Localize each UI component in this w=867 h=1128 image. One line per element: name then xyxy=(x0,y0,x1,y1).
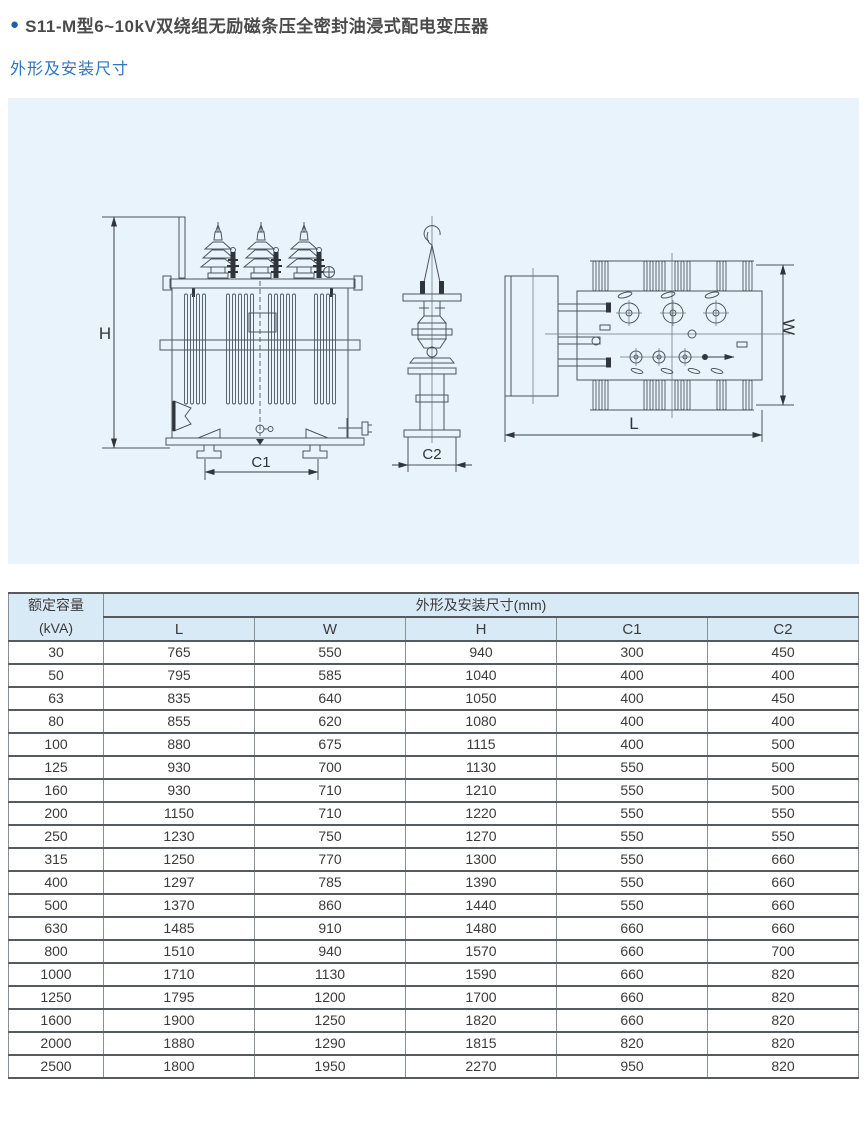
top-view-drawing: W L xyxy=(505,253,798,442)
dimension-cell: 585 xyxy=(255,664,406,687)
dimension-cell: 1130 xyxy=(406,756,557,779)
table-row: 808556201080400400 xyxy=(9,710,859,733)
capacity-cell: 125 xyxy=(9,756,104,779)
dimension-cell: 660 xyxy=(557,940,708,963)
capacity-cell: 250 xyxy=(9,825,104,848)
dimension-cell: 1115 xyxy=(406,733,557,756)
dimension-cell: 660 xyxy=(708,871,859,894)
dimension-cell: 1700 xyxy=(406,986,557,1009)
capacity-cell: 1000 xyxy=(9,963,104,986)
dimension-cell: 1390 xyxy=(406,871,557,894)
dimension-cell: 400 xyxy=(557,687,708,710)
dimension-cell: 1270 xyxy=(406,825,557,848)
capacity-cell: 800 xyxy=(9,940,104,963)
dimension-cell: 640 xyxy=(255,687,406,710)
dimension-cell: 1800 xyxy=(104,1055,255,1078)
capacity-cell: 2500 xyxy=(9,1055,104,1078)
table-row: 2500180019502270950820 xyxy=(9,1055,859,1078)
dimension-cell: 860 xyxy=(255,894,406,917)
dimension-cell: 1040 xyxy=(406,664,557,687)
table-row: 1000171011301590660820 xyxy=(9,963,859,986)
dimension-cell: 880 xyxy=(104,733,255,756)
dimension-cell: 785 xyxy=(255,871,406,894)
dim-label-c2: C2 xyxy=(422,446,441,463)
dimension-cell: 400 xyxy=(708,710,859,733)
bushing-top-icon xyxy=(660,300,686,326)
dimension-cell: 400 xyxy=(708,664,859,687)
col-header-l: L xyxy=(104,617,255,641)
table-subheader-row: L W H C1 C2 xyxy=(9,617,859,641)
dimension-cell: 940 xyxy=(406,641,557,664)
dimension-cell: 930 xyxy=(104,756,255,779)
dimension-cell: 1950 xyxy=(255,1055,406,1078)
col-header-w: W xyxy=(255,617,406,641)
dimension-cell: 820 xyxy=(708,963,859,986)
dimension-cell: 1900 xyxy=(104,1009,255,1032)
table-body: 3076555094030045050795585104040040063835… xyxy=(9,641,859,1078)
dimension-cell: 660 xyxy=(557,986,708,1009)
table-row: 1259307001130550500 xyxy=(9,756,859,779)
capacity-cell: 50 xyxy=(9,664,104,687)
capacity-cell: 200 xyxy=(9,802,104,825)
dimension-cell: 1440 xyxy=(406,894,557,917)
dimension-cell: 1590 xyxy=(406,963,557,986)
table-row: 20011507101220550550 xyxy=(9,802,859,825)
dimension-cell: 550 xyxy=(708,825,859,848)
capacity-cell: 2000 xyxy=(9,1032,104,1055)
dimension-cell: 1370 xyxy=(104,894,255,917)
lv-bushing-icon xyxy=(227,248,239,279)
front-view-drawing: H xyxy=(99,217,372,480)
capacity-cell: 1600 xyxy=(9,1009,104,1032)
page-title: ● S11-M型6~10kV双绕组无励磁条压全密封油浸式配电变压器 xyxy=(10,12,489,37)
table-row: 50013708601440550660 xyxy=(9,894,859,917)
bushing-top-icon xyxy=(703,300,729,326)
dimension-cell: 855 xyxy=(104,710,255,733)
hv-bushing-icon xyxy=(201,222,235,278)
side-valve-icon xyxy=(338,418,372,438)
dimension-cell: 620 xyxy=(255,710,406,733)
lv-bushing-icon xyxy=(270,248,282,279)
dimension-cell: 550 xyxy=(557,871,708,894)
table-row: 1250179512001700660820 xyxy=(9,986,859,1009)
dimension-cell: 550 xyxy=(557,802,708,825)
dimension-cell: 820 xyxy=(708,986,859,1009)
table-row: 1008806751115400500 xyxy=(9,733,859,756)
dimension-cell: 1290 xyxy=(255,1032,406,1055)
dimension-cell: 835 xyxy=(104,687,255,710)
dimension-cell: 660 xyxy=(708,917,859,940)
dimension-cell: 710 xyxy=(255,802,406,825)
dimension-cell: 1710 xyxy=(104,963,255,986)
dimension-cell: 550 xyxy=(255,641,406,664)
dimension-cell: 1570 xyxy=(406,940,557,963)
transformer-outline-drawing: H xyxy=(8,98,859,564)
side-view-drawing: C2 xyxy=(392,216,472,472)
dimension-cell: 910 xyxy=(255,917,406,940)
dimension-cell: 1815 xyxy=(406,1032,557,1055)
capacity-cell: 100 xyxy=(9,733,104,756)
dimension-cell: 1210 xyxy=(406,779,557,802)
dim-label-w: W xyxy=(779,319,798,335)
dimension-cell: 1200 xyxy=(255,986,406,1009)
dimension-cell: 1220 xyxy=(406,802,557,825)
dimension-group-header: 外形及安装尺寸(mm) xyxy=(104,593,859,617)
dimension-cell: 1820 xyxy=(406,1009,557,1032)
capacity-cell: 160 xyxy=(9,779,104,802)
dimension-cell: 400 xyxy=(557,710,708,733)
capacity-cell: 80 xyxy=(9,710,104,733)
dimension-cell: 940 xyxy=(255,940,406,963)
dimension-cell: 500 xyxy=(708,756,859,779)
hv-bushing-icon xyxy=(287,222,321,278)
capacity-cell: 1250 xyxy=(9,986,104,1009)
dimension-cell: 550 xyxy=(557,894,708,917)
table-row: 1609307101210550500 xyxy=(9,779,859,802)
dimension-cell: 1480 xyxy=(406,917,557,940)
dimension-cell: 300 xyxy=(557,641,708,664)
dimension-cell: 1080 xyxy=(406,710,557,733)
section-subtitle: 外形及安装尺寸 xyxy=(10,55,129,79)
dimension-cell: 550 xyxy=(557,825,708,848)
capacity-header-label: 额定容量 xyxy=(9,594,103,617)
dimension-cell: 950 xyxy=(557,1055,708,1078)
dimension-cell: 1150 xyxy=(104,802,255,825)
dim-label-l: L xyxy=(629,414,638,433)
dimension-cell: 795 xyxy=(104,664,255,687)
dimension-cell: 820 xyxy=(708,1032,859,1055)
dimension-cell: 1297 xyxy=(104,871,255,894)
col-header-h: H xyxy=(406,617,557,641)
dimension-cell: 2270 xyxy=(406,1055,557,1078)
dimension-cell: 660 xyxy=(557,1009,708,1032)
dimension-cell: 820 xyxy=(708,1055,859,1078)
table-row: 25012307501270550550 xyxy=(9,825,859,848)
capacity-cell: 630 xyxy=(9,917,104,940)
dimension-cell: 660 xyxy=(708,848,859,871)
dimension-cell: 450 xyxy=(708,641,859,664)
dimension-cell: 660 xyxy=(557,963,708,986)
col-header-c1: C1 xyxy=(557,617,708,641)
dimension-cell: 400 xyxy=(557,664,708,687)
table-row: 507955851040400400 xyxy=(9,664,859,687)
dimension-cell: 1485 xyxy=(104,917,255,940)
capacity-cell: 315 xyxy=(9,848,104,871)
dimension-cell: 450 xyxy=(708,687,859,710)
hv-bushing-icon xyxy=(244,222,278,278)
dimension-cell: 1130 xyxy=(255,963,406,986)
dimension-cell: 765 xyxy=(104,641,255,664)
col-header-c2: C2 xyxy=(708,617,859,641)
ground-bracket-icon xyxy=(173,401,192,431)
dimension-cell: 550 xyxy=(557,848,708,871)
table-row: 80015109401570660700 xyxy=(9,940,859,963)
capacity-cell: 400 xyxy=(9,871,104,894)
dimension-cell: 820 xyxy=(708,1009,859,1032)
capacity-cell: 63 xyxy=(9,687,104,710)
dimension-cell: 550 xyxy=(557,779,708,802)
dimension-cell: 500 xyxy=(708,779,859,802)
table-row: 31512507701300550660 xyxy=(9,848,859,871)
dimension-cell: 1230 xyxy=(104,825,255,848)
dimension-cell: 550 xyxy=(708,802,859,825)
dimension-cell: 550 xyxy=(557,756,708,779)
dimension-cell: 500 xyxy=(708,733,859,756)
table-row: 2000188012901815820820 xyxy=(9,1032,859,1055)
dimension-cell: 675 xyxy=(255,733,406,756)
dimension-cell: 660 xyxy=(557,917,708,940)
dimension-cell: 750 xyxy=(255,825,406,848)
capacity-cell: 30 xyxy=(9,641,104,664)
dimension-cell: 1510 xyxy=(104,940,255,963)
dimension-cell: 820 xyxy=(557,1032,708,1055)
capacity-header-unit: (kVA) xyxy=(9,617,103,640)
drain-valve-icon xyxy=(256,425,273,445)
dimension-cell: 930 xyxy=(104,779,255,802)
dimension-cell: 1880 xyxy=(104,1032,255,1055)
capacity-cell: 500 xyxy=(9,894,104,917)
dimension-cell: 1795 xyxy=(104,986,255,1009)
bushing-top-icon xyxy=(616,300,642,326)
table-row: 40012977851390550660 xyxy=(9,871,859,894)
dimension-cell: 700 xyxy=(708,940,859,963)
table-row: 1600190012501820660820 xyxy=(9,1009,859,1032)
table-header-row: 额定容量 (kVA) 外形及安装尺寸(mm) xyxy=(9,593,859,617)
bullet-icon: ● xyxy=(10,17,19,32)
dimension-cell: 1250 xyxy=(255,1009,406,1032)
oil-plug-icon xyxy=(324,267,335,278)
dimension-cell: 660 xyxy=(708,894,859,917)
dimension-cell: 1250 xyxy=(104,848,255,871)
dimension-cell: 1050 xyxy=(406,687,557,710)
dimensions-table: 额定容量 (kVA) 外形及安装尺寸(mm) L W H C1 C2 30765… xyxy=(8,592,859,1079)
dimension-cell: 710 xyxy=(255,779,406,802)
capacity-header: 额定容量 (kVA) xyxy=(9,593,104,641)
dimension-cell: 400 xyxy=(557,733,708,756)
dimension-cell: 700 xyxy=(255,756,406,779)
drawing-panel: H xyxy=(8,98,859,564)
table-row: 30765550940300450 xyxy=(9,641,859,664)
dimension-cell: 770 xyxy=(255,848,406,871)
table-row: 638356401050400450 xyxy=(9,687,859,710)
dimension-cell: 1300 xyxy=(406,848,557,871)
dim-label-c1: C1 xyxy=(251,454,270,471)
table-row: 63014859101480660660 xyxy=(9,917,859,940)
product-title: S11-M型6~10kV双绕组无励磁条压全密封油浸式配电变压器 xyxy=(25,12,489,37)
dim-label-h: H xyxy=(99,324,111,343)
